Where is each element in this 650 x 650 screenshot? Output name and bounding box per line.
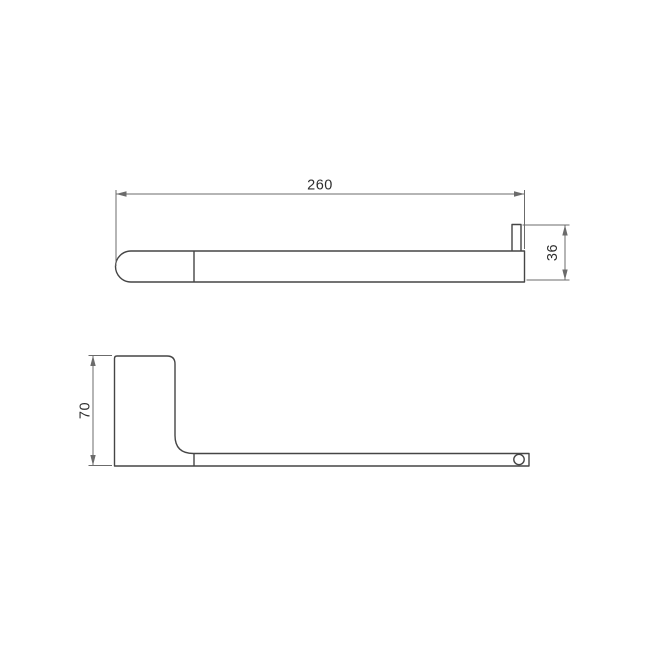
top-view: 260 36 [115, 178, 569, 283]
dimension-label-end-height: 36 [545, 244, 561, 261]
dimension-end-height: 36 [523, 225, 570, 280]
arrowhead-down [562, 270, 567, 281]
dimension-label-length: 260 [307, 178, 333, 194]
towel-bar-outline [115, 251, 524, 282]
arrowhead-up [90, 356, 95, 367]
arrowhead-down [90, 455, 95, 466]
side-view: 70 [78, 356, 530, 467]
drawing-canvas: 260 36 [0, 0, 650, 650]
dimension-length: 260 [116, 178, 525, 267]
dimension-profile-height: 70 [78, 356, 113, 466]
arrowhead-up [562, 225, 567, 236]
bracket-profile-outline [115, 356, 530, 466]
arrowhead-left [116, 191, 127, 196]
mount-tab-outline [512, 225, 521, 252]
dimension-label-profile-height: 70 [78, 402, 94, 419]
arm-end-hole [514, 454, 524, 464]
arrowhead-right [514, 191, 525, 196]
technical-drawing: 260 36 [0, 0, 650, 650]
